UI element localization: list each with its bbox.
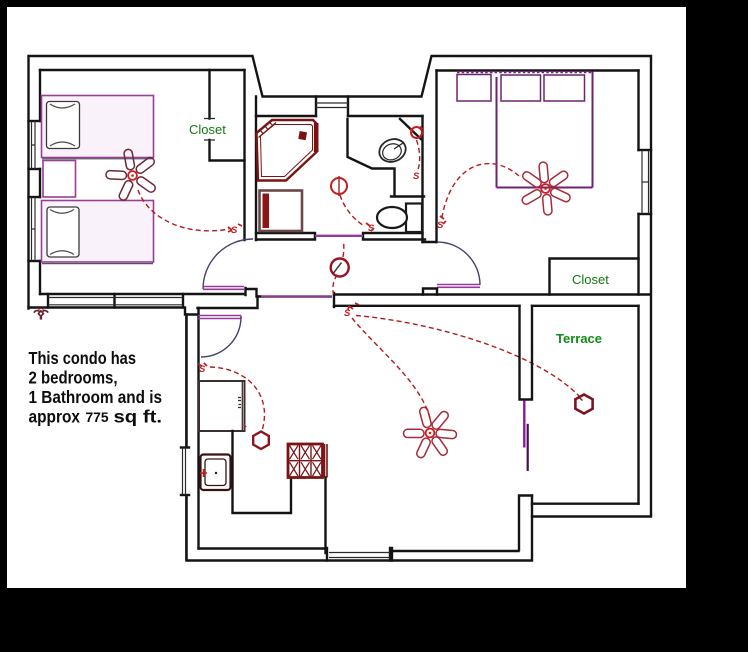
svg-text:S: S xyxy=(368,223,375,234)
svg-text:Closet: Closet xyxy=(572,272,609,287)
svg-text:Terrace: Terrace xyxy=(556,331,602,346)
svg-text:sq ft.: sq ft. xyxy=(114,407,163,427)
svg-text:S: S xyxy=(437,220,444,231)
svg-text:S: S xyxy=(413,171,420,182)
svg-text:1 Bathroom and is: 1 Bathroom and is xyxy=(29,387,163,407)
svg-text:approx: approx xyxy=(29,407,81,427)
svg-text:S: S xyxy=(231,225,238,236)
svg-text:2 bedrooms,: 2 bedrooms, xyxy=(29,368,118,388)
svg-text:This condo has: This condo has xyxy=(29,348,137,368)
svg-text:S: S xyxy=(344,308,351,319)
svg-text:S: S xyxy=(199,364,206,375)
svg-text:Closet: Closet xyxy=(189,122,226,137)
svg-text:775: 775 xyxy=(86,410,109,425)
